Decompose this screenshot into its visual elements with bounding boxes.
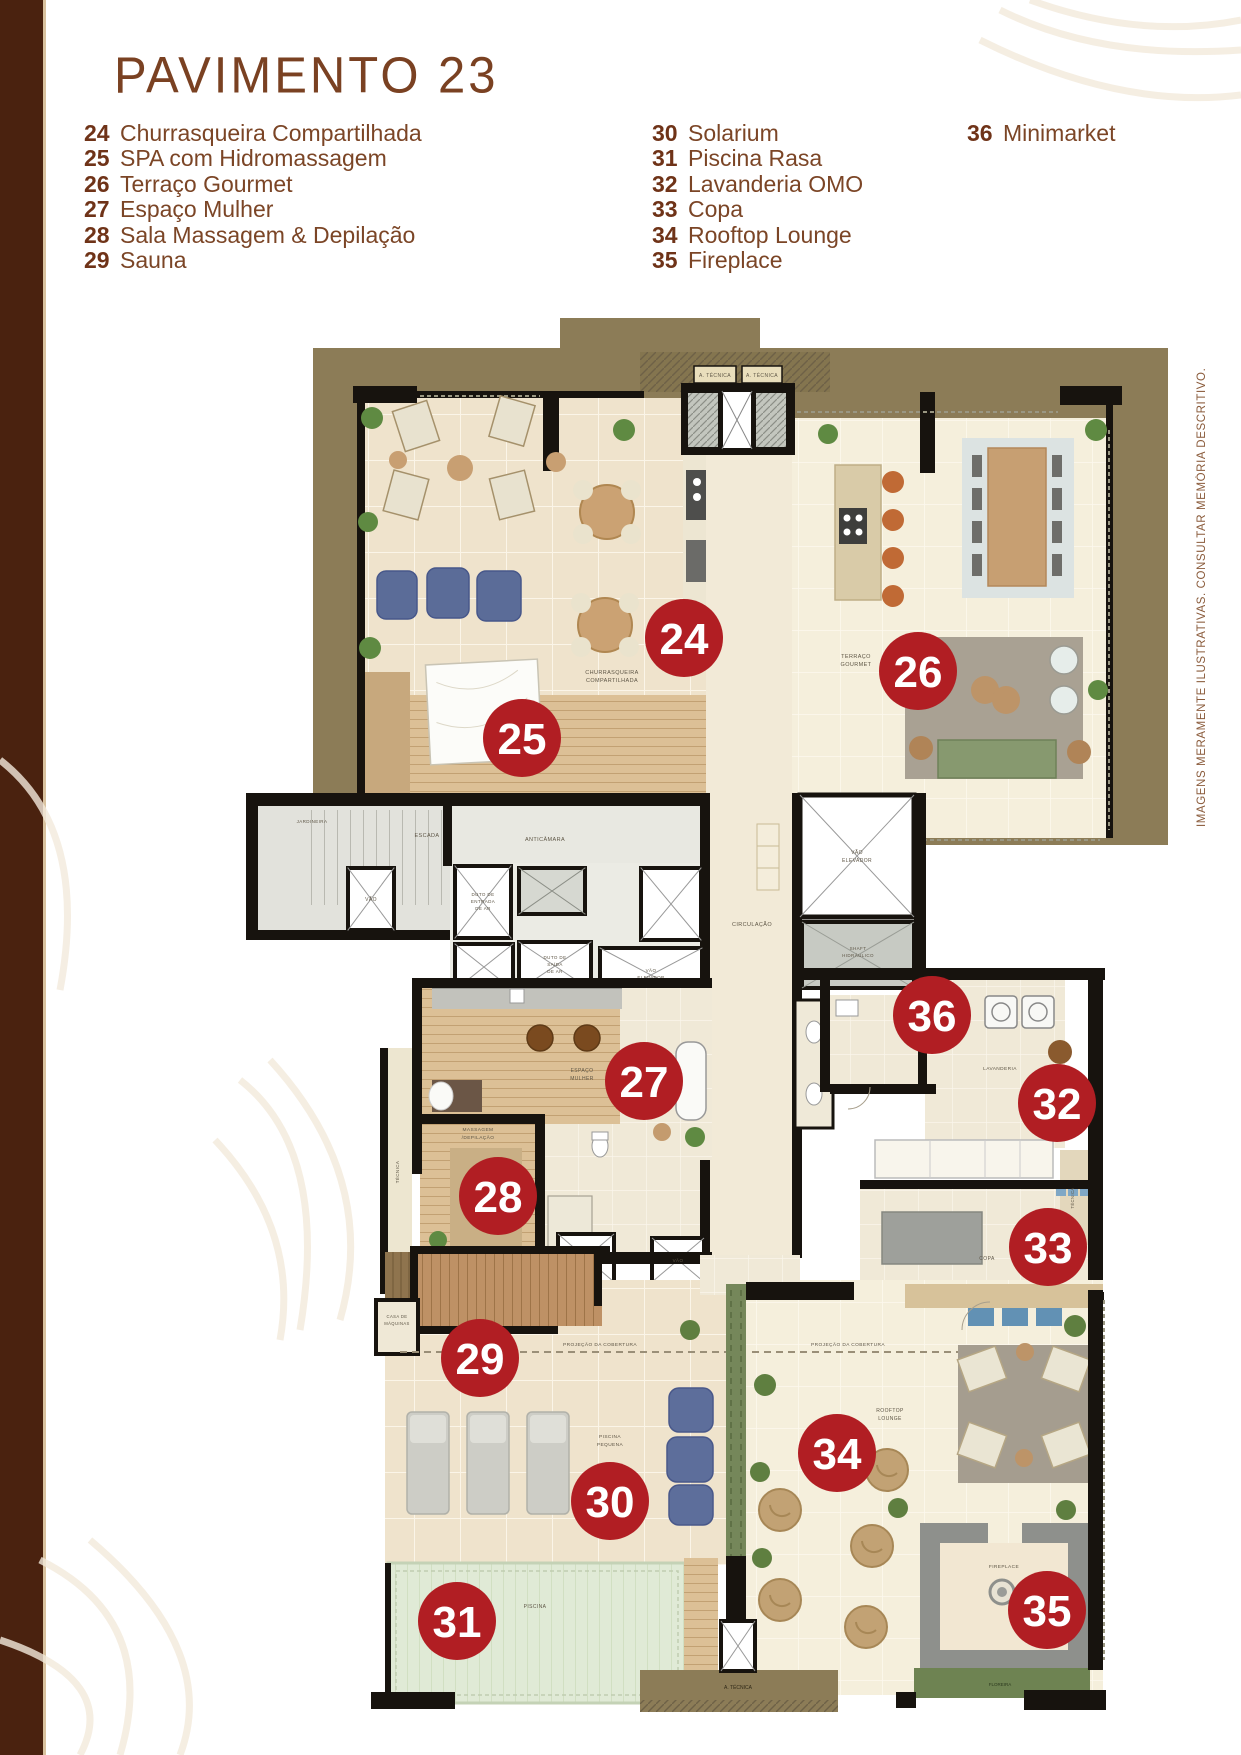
svg-text:/DEPILAÇÃO: /DEPILAÇÃO	[462, 1134, 495, 1141]
svg-text:25: 25	[498, 715, 547, 764]
tecnica-label: TÉCNICA	[394, 1161, 400, 1184]
svg-text:30: 30	[586, 1478, 635, 1527]
svg-text:VÃO: VÃO	[646, 967, 657, 973]
roof-tech-label: A. TÉCNICA	[699, 372, 731, 379]
sun-loungers	[407, 1412, 569, 1514]
marker-25: 25	[483, 699, 561, 777]
floor-plan: A. TÉCNICA A. TÉCNICA	[0, 0, 1241, 1755]
anticamara-label: ANTICÂMARA	[525, 836, 565, 843]
marker-32: 32	[1018, 1064, 1096, 1142]
blue-mats	[968, 1308, 1062, 1326]
marker-24: 24	[645, 599, 723, 677]
svg-text:ELEVADOR: ELEVADOR	[842, 858, 872, 864]
piscina-label: PISCINA	[524, 1604, 547, 1610]
svg-text:DUTO DE: DUTO DE	[472, 892, 495, 897]
svg-text:FLOREIRA: FLOREIRA	[989, 1682, 1012, 1687]
marker-30: 30	[571, 1462, 649, 1540]
marker-31: 31	[418, 1582, 496, 1660]
side-table	[389, 451, 407, 469]
svg-text:LOUNGE: LOUNGE	[878, 1416, 902, 1422]
projecao-label: PROJEÇÃO DA COBERTURA	[563, 1341, 637, 1348]
svg-text:26: 26	[894, 648, 943, 697]
svg-text:27: 27	[620, 1058, 669, 1107]
vao-label: VÃO	[365, 896, 377, 903]
blue-poufs	[667, 1388, 713, 1525]
marker-28: 28	[459, 1157, 537, 1235]
escada-label: ESCADA	[414, 833, 439, 839]
svg-text:28: 28	[474, 1173, 523, 1222]
rooftop-seating	[957, 1343, 1090, 1483]
lavanderia-label: LAVANDERIA	[983, 1066, 1017, 1072]
svg-text:SAÍDA: SAÍDA	[547, 961, 563, 967]
svg-text:24: 24	[660, 615, 709, 664]
svg-text:TÉCNICA: TÉCNICA	[1070, 1187, 1075, 1208]
fireplace-label: FIREPLACE	[989, 1564, 1019, 1570]
brochure-page: PAVIMENTO 23 24Churrasqueira Compartilha…	[0, 0, 1241, 1755]
massagem-label: MASSAGEM	[463, 1127, 494, 1133]
anticamara-room	[450, 806, 738, 863]
marker-34: 34	[798, 1414, 876, 1492]
casa-maquinas-room: CASA DE MÁQUINAS	[376, 1300, 418, 1354]
rooftop-label: ROOFTOP	[876, 1408, 904, 1414]
elevator-shaft	[800, 795, 914, 988]
svg-text:33: 33	[1024, 1224, 1073, 1273]
svg-text:A. TÉCNICA: A. TÉCNICA	[724, 1684, 753, 1691]
svg-text:29: 29	[456, 1335, 505, 1384]
dining-table	[962, 438, 1074, 598]
disclaimer-text: IMAGENS MERAMENTE ILUSTRATIVAS. CONSULTA…	[1196, 365, 1218, 827]
duct-structure	[681, 383, 795, 455]
marker-35: 35	[1008, 1571, 1086, 1649]
marker-26: 26	[879, 632, 957, 710]
svg-text:35: 35	[1023, 1587, 1072, 1636]
svg-text:ENTRADA: ENTRADA	[471, 899, 495, 904]
marker-36: 36	[893, 976, 971, 1054]
piscina-pequena-label: PISCINA	[599, 1434, 621, 1440]
vao-elevador-label: VÃO	[851, 849, 863, 856]
svg-text:VÃO: VÃO	[673, 1257, 684, 1263]
svg-text:DE AR: DE AR	[475, 906, 491, 911]
svg-text:34: 34	[813, 1430, 862, 1479]
svg-text:HIDRÁULICO: HIDRÁULICO	[842, 952, 874, 958]
svg-text:MULHER: MULHER	[570, 1076, 594, 1082]
espaco-mulher-label: ESPAÇO	[571, 1068, 594, 1074]
pool-deck	[684, 1558, 718, 1670]
svg-text:A. TÉCNICA: A. TÉCNICA	[746, 372, 778, 379]
svg-text:DUTO DE: DUTO DE	[544, 955, 567, 960]
jardineira-label: JARDINEIRA	[297, 819, 328, 824]
svg-text:31: 31	[433, 1598, 482, 1647]
marker-29: 29	[441, 1319, 519, 1397]
side-table	[546, 452, 566, 472]
svg-text:COMPARTILHADA: COMPARTILHADA	[586, 678, 638, 684]
blue-armchairs	[377, 568, 521, 621]
side-table	[447, 455, 473, 481]
svg-text:PEQUENA: PEQUENA	[597, 1442, 624, 1448]
marker-33: 33	[1009, 1208, 1087, 1286]
shaft-label: SHAFT	[850, 946, 867, 951]
marker-27: 27	[605, 1042, 683, 1120]
svg-text:DE AR: DE AR	[547, 969, 563, 974]
rooftop-deck	[905, 1284, 1103, 1308]
svg-text:32: 32	[1033, 1080, 1082, 1129]
svg-text:GOURMET: GOURMET	[841, 662, 872, 668]
svg-text:CASA DE: CASA DE	[387, 1314, 408, 1319]
svg-text:PROJEÇÃO DA COBERTURA: PROJEÇÃO DA COBERTURA	[811, 1341, 885, 1348]
svg-text:MÁQUINAS: MÁQUINAS	[384, 1321, 410, 1326]
circulacao-label: CIRCULAÇÃO	[732, 921, 772, 928]
copa-label: COPA	[979, 1256, 995, 1262]
churrasqueira-label: CHURRASQUEIRA	[585, 670, 638, 676]
terraco-label: TERRAÇO	[841, 654, 871, 660]
svg-text:36: 36	[908, 992, 957, 1041]
